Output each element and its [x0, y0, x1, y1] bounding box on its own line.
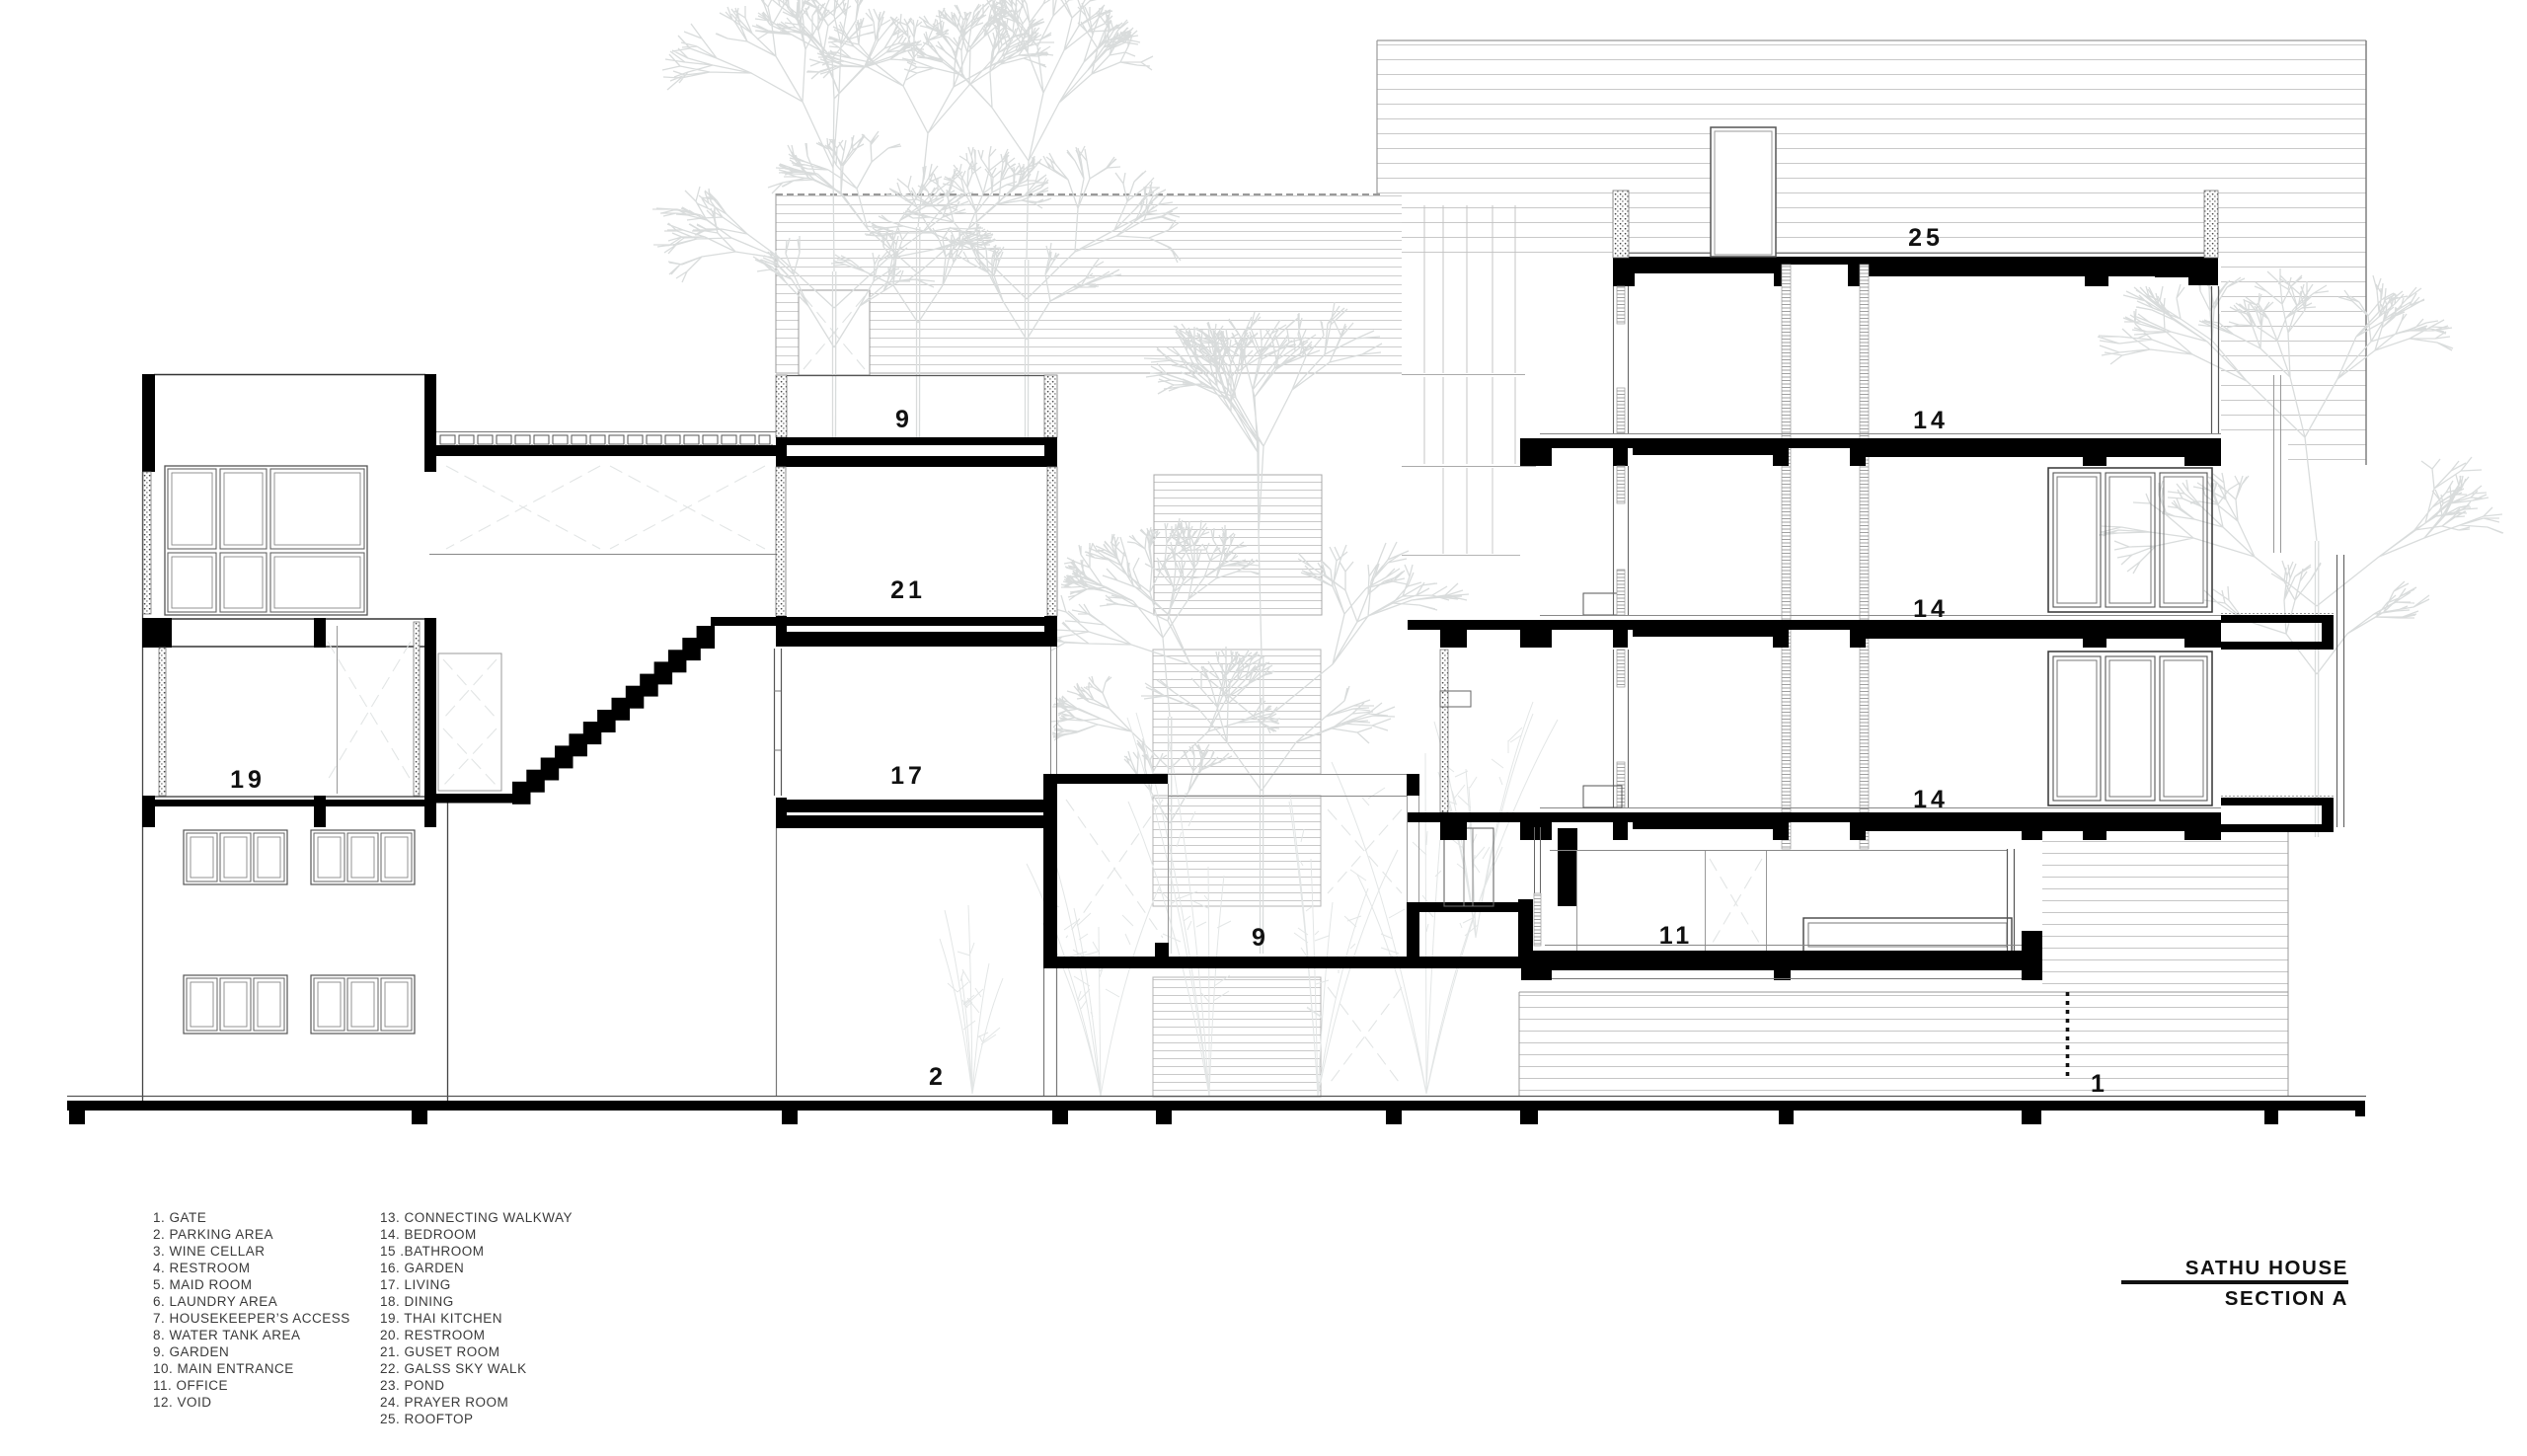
svg-text:3. WINE CELLAR: 3. WINE CELLAR [153, 1244, 266, 1259]
svg-text:11. OFFICE: 11. OFFICE [153, 1378, 228, 1393]
svg-text:15 .BATHROOM: 15 .BATHROOM [380, 1244, 485, 1259]
svg-text:21: 21 [890, 576, 926, 604]
svg-text:14: 14 [1913, 407, 1949, 434]
svg-text:25: 25 [1908, 224, 1944, 252]
svg-text:24. PRAYER ROOM: 24. PRAYER ROOM [380, 1395, 508, 1410]
svg-text:2: 2 [929, 1063, 947, 1091]
svg-text:10. MAIN ENTRANCE: 10. MAIN ENTRANCE [153, 1361, 294, 1376]
svg-text:23. POND: 23. POND [380, 1378, 445, 1393]
svg-text:9: 9 [895, 406, 913, 433]
svg-text:12. VOID: 12. VOID [153, 1395, 212, 1410]
svg-text:19. THAI KITCHEN: 19. THAI KITCHEN [380, 1311, 502, 1326]
svg-text:14. BEDROOM: 14. BEDROOM [380, 1227, 477, 1242]
svg-text:4. RESTROOM: 4. RESTROOM [153, 1261, 251, 1275]
svg-text:11: 11 [1659, 922, 1693, 950]
svg-text:18. DINING: 18. DINING [380, 1294, 454, 1309]
svg-text:21. GUSET ROOM: 21. GUSET ROOM [380, 1344, 500, 1359]
svg-text:19: 19 [230, 766, 266, 794]
svg-text:9: 9 [1252, 924, 1269, 952]
svg-text:17. LIVING: 17. LIVING [380, 1277, 451, 1292]
svg-text:14: 14 [1913, 595, 1949, 623]
svg-text:16. GARDEN: 16. GARDEN [380, 1261, 464, 1275]
svg-text:14: 14 [1913, 786, 1949, 813]
svg-text:20. RESTROOM: 20. RESTROOM [380, 1328, 486, 1342]
svg-text:8. WATER TANK AREA: 8. WATER TANK AREA [153, 1328, 301, 1342]
svg-text:SATHU HOUSE: SATHU HOUSE [2185, 1257, 2348, 1279]
svg-text:22. GALSS SKY WALK: 22. GALSS SKY WALK [380, 1361, 527, 1376]
svg-text:1: 1 [2091, 1070, 2108, 1098]
svg-text:5. MAID ROOM: 5. MAID ROOM [153, 1277, 253, 1292]
svg-text:6. LAUNDRY AREA: 6. LAUNDRY AREA [153, 1294, 277, 1309]
svg-text:13. CONNECTING WALKWAY: 13. CONNECTING WALKWAY [380, 1210, 573, 1225]
svg-text:SECTION A: SECTION A [2225, 1287, 2348, 1310]
svg-text:9. GARDEN: 9. GARDEN [153, 1344, 229, 1359]
svg-text:7. HOUSEKEEPER’S ACCESS: 7. HOUSEKEEPER’S ACCESS [153, 1311, 350, 1326]
svg-text:25. ROOFTOP: 25. ROOFTOP [380, 1412, 474, 1426]
svg-text:2. PARKING AREA: 2. PARKING AREA [153, 1227, 273, 1242]
svg-text:17: 17 [890, 762, 926, 790]
svg-text:1. GATE: 1. GATE [153, 1210, 206, 1225]
